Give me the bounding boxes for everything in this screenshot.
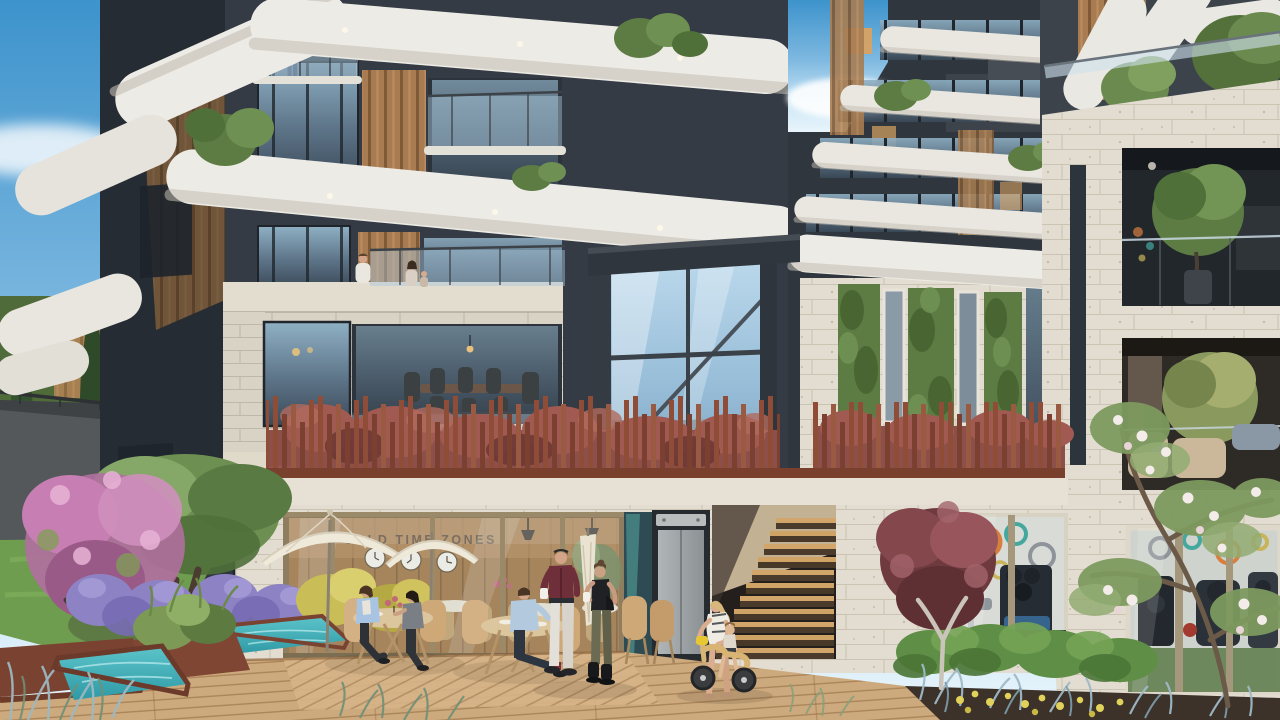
yellow-handlebar-pouch (696, 636, 708, 645)
terrace-glass-railing (370, 246, 565, 286)
wing-timber-column (830, 0, 864, 135)
balcony-glass-railing-2 (424, 92, 566, 155)
rendering-canvas: ORLD TIME ZONES (0, 0, 1280, 720)
slit-window (1070, 165, 1086, 465)
coffee-cup (540, 588, 548, 599)
plant-pot (1184, 270, 1212, 304)
coffee-cup (583, 592, 590, 602)
scene-svg: ORLD TIME ZONES (0, 0, 1280, 720)
right-balcony-1 (1122, 148, 1280, 306)
corten-fence-left (266, 390, 780, 480)
